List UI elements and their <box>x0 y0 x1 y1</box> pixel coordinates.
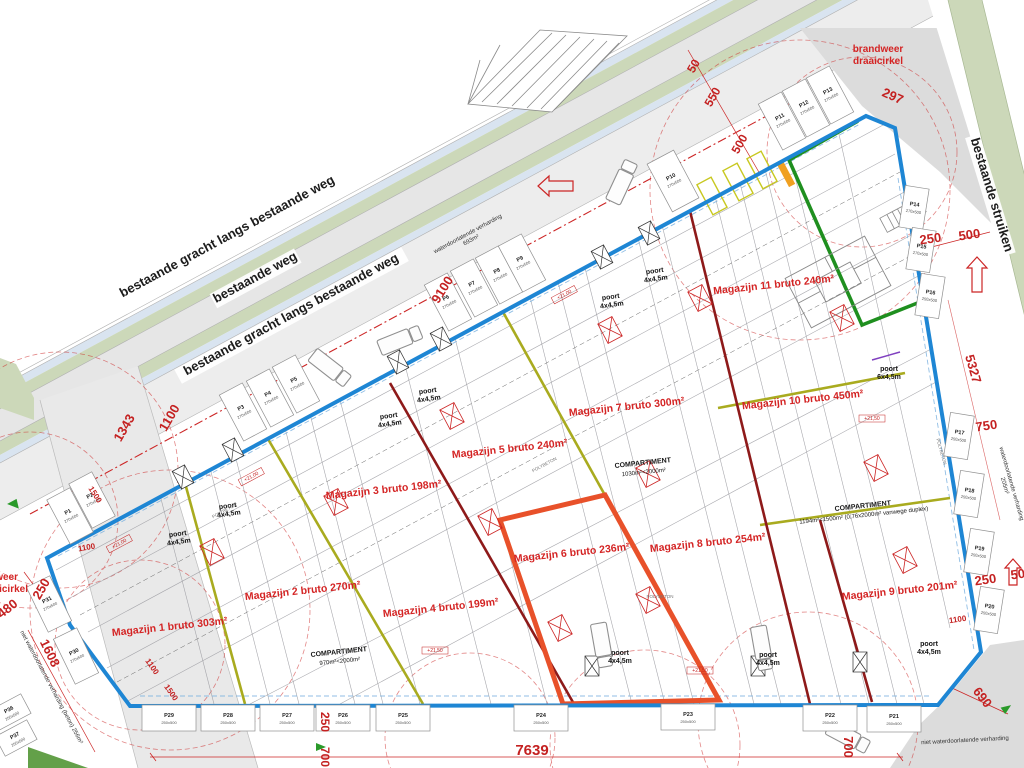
svg-text:P21: P21 <box>889 714 899 720</box>
svg-text:4x4,5m: 4x4,5m <box>917 649 941 656</box>
dim-250-east: 250 <box>919 230 943 248</box>
magazijn-2-label: Magazijn 2 bruto 270m² <box>244 579 361 603</box>
brandweer-left-line1: brandweer <box>0 572 18 583</box>
svg-text:P27: P27 <box>282 713 292 719</box>
svg-text:250x500: 250x500 <box>822 720 838 725</box>
dim-250-bottom: 250 <box>318 712 332 732</box>
dim-700-bottom: 700 <box>318 747 332 767</box>
svg-text:P26: P26 <box>338 713 348 719</box>
svg-text:P23: P23 <box>683 712 693 718</box>
svg-text:P28: P28 <box>223 713 233 719</box>
svg-text:250x500: 250x500 <box>161 720 177 725</box>
polybeton-label: POLYBETON <box>646 594 673 599</box>
brandweer-left-line2: draaicirkel <box>0 584 28 595</box>
svg-text:P24: P24 <box>536 713 547 719</box>
polybeton-label: POLYBETON <box>531 456 557 473</box>
dim-500-east: 500 <box>958 226 982 244</box>
svg-text:P29: P29 <box>164 713 174 719</box>
parcel-P20: P20250x500 <box>974 586 1005 633</box>
parcel-P22: P22250x500 <box>803 705 857 731</box>
compartment-2-area: 1030m²<2000m² <box>622 468 667 479</box>
site-plan-page: P1270x500 P2270x500 P3270x500 P4270x500 … <box>0 0 1024 768</box>
magazijn-7-label: Magazijn 7 bruto 300m² <box>568 395 685 419</box>
dim-750: 750 <box>975 417 999 435</box>
brandweer-topright-line2: draaicirkel <box>853 56 903 67</box>
svg-text:4x4,5m: 4x4,5m <box>756 660 780 667</box>
svg-text:P25: P25 <box>398 713 408 719</box>
magazijn-4-label: Magazijn 4 bruto 199m² <box>382 596 499 620</box>
brandweer-topright-line1: brandweer <box>853 44 904 55</box>
site-plan-drawing: P1270x500 P2270x500 P3270x500 P4270x500 … <box>0 0 1024 768</box>
level-marker: +21,00 <box>556 289 573 302</box>
parcel-P24: P24250x500 <box>514 705 568 731</box>
dim-500-southeast: 500 <box>1010 565 1024 583</box>
dim-480: 480 <box>0 596 20 621</box>
magazijn-3-label: Magazijn 3 bruto 198m² <box>325 478 442 502</box>
svg-text:250x500: 250x500 <box>680 719 696 724</box>
svg-text:250x500: 250x500 <box>335 720 351 725</box>
dim-250-southeast: 250 <box>974 571 998 589</box>
parcel-P17: P17250x500 <box>944 412 975 459</box>
magazijn-6-label: Magazijn 6 bruto 236m² <box>513 541 630 565</box>
parcel-P27: P27250x500 <box>260 705 314 731</box>
level-marker: +21,00 <box>243 471 260 484</box>
purple-mark <box>872 352 900 360</box>
svg-text:250x500: 250x500 <box>220 720 236 725</box>
up-arrow-icon <box>967 257 987 292</box>
parcel-P21: P21250x500 <box>867 706 921 732</box>
magazijn-8-label: Magazijn 8 bruto 254m² <box>649 531 766 555</box>
parcel-P28: P28250x500 <box>201 705 255 731</box>
svg-text:6x4,5m: 6x4,5m <box>877 374 901 381</box>
svg-text:250x500: 250x500 <box>395 720 411 725</box>
poort-label: poort <box>759 652 778 659</box>
dim-7639: 7639 <box>515 742 548 759</box>
parcel-P29: P29250x500 <box>142 705 196 731</box>
poort-large-label: poort <box>880 366 899 373</box>
level-marker: +21,50 <box>864 416 880 422</box>
parcel-P18: P18250x500 <box>954 470 985 517</box>
parcel-P19: P19250x500 <box>964 528 995 575</box>
parcel-P23: P23250x500 <box>661 704 715 730</box>
svg-text:250x500: 250x500 <box>533 720 549 725</box>
svg-text:250x500: 250x500 <box>279 720 295 725</box>
compartment-1-area: 970m²<2000m² <box>319 657 360 667</box>
dim-1100-east: 1100 <box>948 614 967 625</box>
parcel-P25: P25250x500 <box>376 705 430 731</box>
dim-700-east: 700 <box>841 736 856 758</box>
level-marker: +21,50 <box>692 668 708 674</box>
dim-5327: 5327 <box>962 353 984 385</box>
poort-label: poort <box>920 641 939 648</box>
level-marker: +21,50 <box>427 648 443 654</box>
svg-text:4x4,5m: 4x4,5m <box>608 658 632 665</box>
magazijn-9-label: Magazijn 9 bruto 201m² <box>841 579 958 603</box>
svg-text:250x500: 250x500 <box>886 721 902 726</box>
svg-text:P22: P22 <box>825 713 835 719</box>
poort-label: poort <box>611 650 630 657</box>
